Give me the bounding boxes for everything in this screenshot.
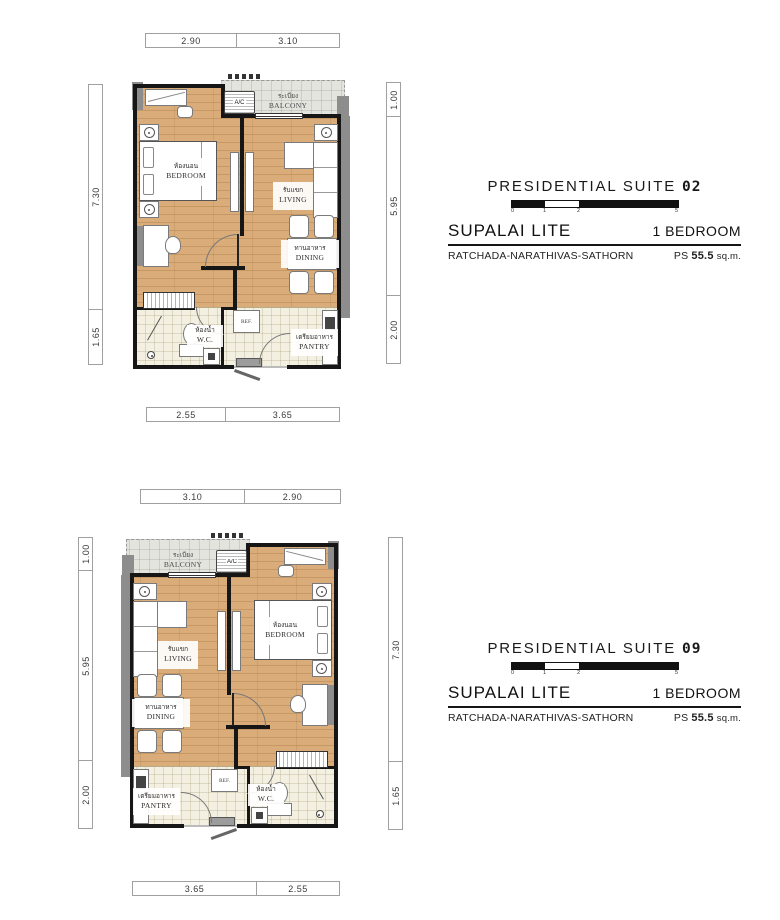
sofa-chaise [157,601,187,628]
scale-segment [512,663,545,669]
vent-tick [211,533,215,538]
tv-console [245,152,254,212]
wall-balcony-south [221,114,255,118]
shower-head-dot [319,814,321,816]
dim-value: 1.00 [386,82,401,117]
tv-console [217,611,226,671]
living-label: รับแขกLIVING [273,182,313,210]
scale-segment [512,201,545,207]
bedroom-label: ห้องนอนBEDROOM [159,158,213,186]
closet-rod [286,551,323,561]
wall-balcony-south [216,573,250,577]
nightstand [312,660,332,677]
wall-top [246,543,338,547]
pantry-label: เตรียมอาหารPANTRY [133,788,180,815]
wall-partition [240,114,244,236]
wall-hall [233,268,237,310]
dining-chair [289,271,309,294]
wall-left [133,84,137,369]
lamp-icon [317,663,328,674]
sofa-chaise [284,142,314,169]
project-location: RATCHADA-NARATHIVAS-SATHORN [448,712,633,724]
vent-tick [232,533,236,538]
dim-value: 5.95 [78,570,93,761]
refrigerator-label: REF. [241,319,252,325]
dim-col-left-09: 1.00 5.95 2.00 [78,537,93,829]
dim-value: 2.00 [78,760,93,829]
wc-label: ห้องน้ำW.C. [248,784,284,806]
wardrobe [276,751,328,768]
dim-value: 5.95 [386,116,401,296]
location-row: RATCHADA-NARATHIVAS-SATHORN PS 55.5 sq.m… [448,250,741,262]
vent-tick [225,533,229,538]
pillow [143,147,154,168]
project-location: RATCHADA-NARATHIVAS-SATHORN [448,250,633,262]
dining-chair [314,271,334,294]
vent-tick [239,533,243,538]
dim-row-bottom-09: 3.65 2.55 [132,881,340,896]
tv-console [232,611,241,671]
vent-tick [249,74,253,79]
refrigerator-label: REF. [219,778,230,784]
dim-row-top-02: 2.90 3.10 [145,33,340,48]
shower-head-dot [151,355,153,357]
dining-chair [289,215,309,238]
nightstand [139,124,159,141]
pillow [317,633,328,654]
floorplan-suite-09: ห้องนอนBEDROOM รับแขกLIVING ทานอาหารDINI… [120,537,338,829]
desk-chair [290,695,306,713]
wc-sink-basin [256,812,263,819]
ac-label: A/C [233,100,245,106]
lamp-icon [321,127,332,138]
closet-rod [148,92,185,102]
wc-sink [203,348,220,365]
sofa [313,142,338,218]
dining-chair [137,674,157,697]
project-row: SUPALAI LITE 1 BEDROOM [448,221,741,246]
bedroom-door-leaf [232,693,234,726]
wall-left [334,543,338,828]
dim-value: 2.55 [146,407,226,422]
tv-console [230,152,239,212]
vent-tick [242,74,246,79]
bedroom-type: 1 BEDROOM [652,223,741,239]
dim-value: 3.65 [132,881,257,896]
floorplan-suite-02: ห้องนอนBEDROOM รับแขกLIVING ทานอาหารDINI… [133,78,351,370]
project-name: SUPALAI LITE [448,221,571,241]
bedroom-type: 1 BEDROOM [652,685,741,701]
plan-number: 02 [682,179,701,195]
dining-chair [162,674,182,697]
titleblock-suite-02: PRESIDENTIAL SUITE 02 0 1 2 5 SUPALAI LI… [448,178,741,262]
dim-value: 1.65 [388,761,403,830]
refrigerator: REF. [233,310,260,333]
dim-col-right-09: 7.30 1.65 [388,537,403,830]
vent-tick [218,533,222,538]
wall-balcony-south [303,114,341,118]
dim-row-bottom-02: 2.55 3.65 [146,407,340,422]
dining-label: ทานอาหารDINING [132,699,190,727]
entry-door-leaf [211,828,237,840]
side-table [314,124,338,141]
wall-hall [234,727,238,769]
side-table [133,583,157,600]
sofa [133,601,158,677]
plan-title: PRESIDENTIAL SUITE 02 [448,178,741,195]
lamp-icon [144,127,155,138]
nightstand [312,583,332,600]
scale-segment [579,663,678,669]
scale-ticks: 0 1 2 5 [511,208,679,216]
pillow [317,606,328,627]
project-name: SUPALAI LITE [448,683,571,703]
scale-bar-segments [511,200,679,208]
refrigerator: REF. [211,769,238,792]
lamp-icon [317,586,328,597]
living-label: รับแขกLIVING [158,641,198,669]
entry-door-leaf [234,369,260,381]
closet [145,89,187,106]
dim-value: 1.00 [78,537,93,571]
ac-unit: A/C [216,550,247,573]
pillow [143,174,154,195]
dim-value: 3.65 [225,407,340,422]
dim-value: 7.30 [88,84,103,310]
dim-value: 3.10 [236,33,340,48]
dining-chair [162,730,182,753]
wc-sink-basin [208,353,215,360]
vent-tick [235,74,239,79]
plan-title: PRESIDENTIAL SUITE 09 [448,640,741,657]
closet [284,548,326,565]
ac-label: A/C [226,559,238,565]
scale-bar: 0 1 2 5 [511,662,679,678]
dim-value: 3.10 [140,489,245,504]
dim-value: 2.00 [386,295,401,364]
stool [278,565,294,577]
lamp-icon [144,204,155,215]
unit-area: PS 55.5 sq.m. [674,250,741,262]
titleblock-suite-09: PRESIDENTIAL SUITE 09 0 1 2 5 SUPALAI LI… [448,640,741,724]
plan-number: 09 [682,641,701,657]
wc-label: ห้องน้ำW.C. [187,325,223,347]
vent-tick [256,74,260,79]
dim-value: 7.30 [388,537,403,762]
wall-partition [227,573,231,695]
wall-bottom [287,365,341,369]
project-row: SUPALAI LITE 1 BEDROOM [448,683,741,708]
entry-mat [209,817,235,826]
scale-bar-segments [511,662,679,670]
stool [177,106,193,118]
wall-top [133,84,225,88]
floorplan-sheet: 2.90 3.10 2.55 3.65 7.30 1.65 1.00 5.95 … [0,0,780,920]
scale-segment [579,201,678,207]
balcony-label: ระเบียงBALCONY [264,89,312,114]
wall-bottom [130,824,184,828]
wall-bottom [237,824,338,828]
shower-head [316,810,324,818]
desk-chair [165,236,181,254]
column [340,116,350,318]
dim-value: 2.90 [244,489,341,504]
dim-value: 2.90 [145,33,237,48]
wall-bottom [133,365,234,369]
bedroom-door-leaf [237,234,239,267]
vent-tick [228,74,232,79]
balcony-label: ระเบียงBALCONY [159,548,207,573]
scale-bar: 0 1 2 5 [511,200,679,216]
shower-head [147,351,155,359]
ac-unit: A/C [224,91,255,114]
dim-value: 2.55 [256,881,340,896]
scale-segment [545,201,579,207]
bedroom-label: ห้องนอนBEDROOM [258,617,312,645]
wardrobe [143,292,195,309]
dining-chair [314,215,334,238]
dim-row-top-09: 3.10 2.90 [140,489,341,504]
pantry-label: เตรียมอาหารPANTRY [291,329,338,356]
lamp-icon [140,586,151,597]
dining-label: ทานอาหารDINING [281,240,339,268]
dim-value: 1.65 [88,309,103,365]
wall-balcony-south [130,573,168,577]
location-row: RATCHADA-NARATHIVAS-SATHORN PS 55.5 sq.m… [448,712,741,724]
dim-col-left-02: 7.30 1.65 [88,84,103,365]
nightstand [139,201,159,218]
column [337,96,349,116]
scale-segment [545,663,579,669]
dining-chair [137,730,157,753]
dim-col-right-02: 1.00 5.95 2.00 [386,82,401,364]
column [122,555,134,575]
wc-sink [251,807,268,824]
scale-ticks: 0 1 2 5 [511,670,679,678]
unit-area: PS 55.5 sq.m. [674,712,741,724]
